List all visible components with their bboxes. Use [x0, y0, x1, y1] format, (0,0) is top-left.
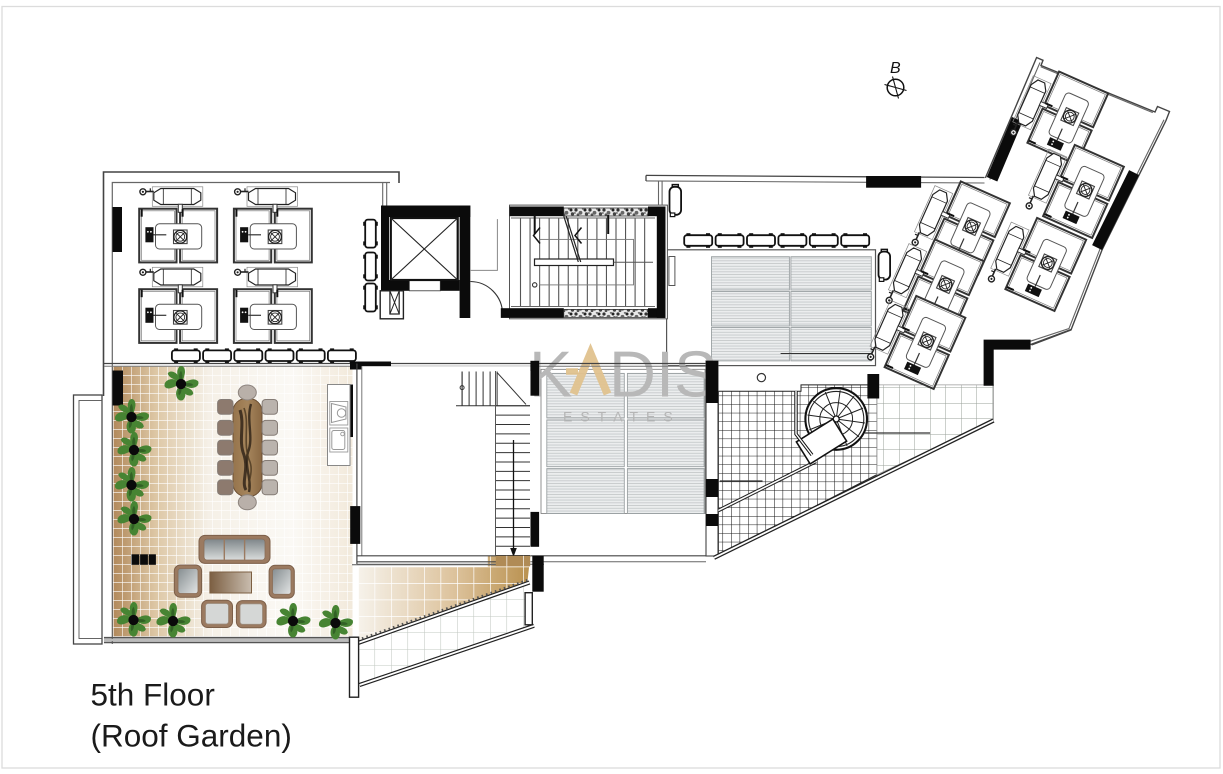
- svg-text:5th Floor: 5th Floor: [91, 677, 215, 713]
- svg-text:(Roof Garden): (Roof Garden): [91, 718, 292, 754]
- svg-text:ESTATES: ESTATES: [563, 409, 681, 425]
- svg-text:DIS: DIS: [609, 338, 717, 411]
- svg-text:B: B: [890, 60, 901, 77]
